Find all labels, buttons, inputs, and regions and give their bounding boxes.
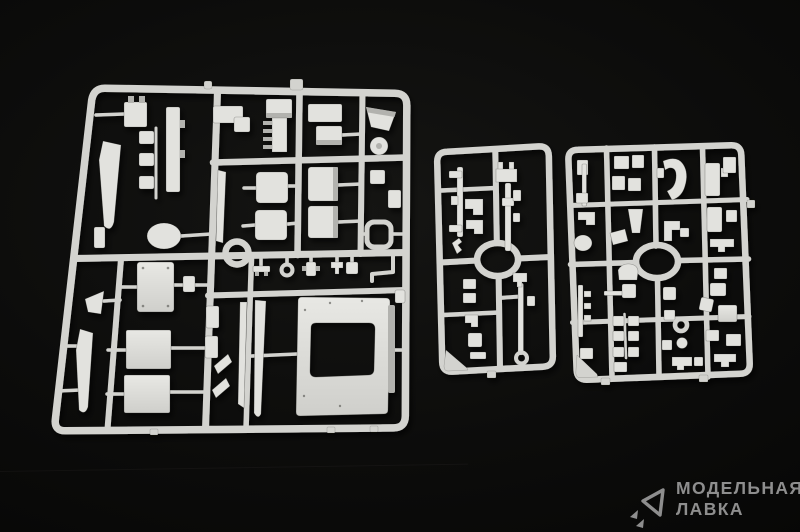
sprues-scene	[0, 0, 800, 532]
watermark-text: МОДЕЛЬНАЯ ЛАВКА	[676, 478, 800, 520]
louver-grille-part	[272, 118, 287, 152]
roof-panel-part	[296, 297, 390, 416]
open-frame-part	[367, 222, 391, 247]
turret-part	[618, 264, 638, 280]
watermark-line2: ЛАВКА	[676, 499, 800, 520]
sprue-ring	[636, 245, 678, 278]
photo-model-sprues: МОДЕЛЬНАЯ ЛАВКА	[0, 0, 800, 532]
small-sprue-parts	[574, 155, 755, 385]
sprue-rails	[571, 147, 750, 379]
gun-rod-part	[505, 183, 511, 251]
hatch-panel-part	[137, 262, 174, 312]
watermark-line1: МОДЕЛЬНАЯ	[676, 478, 800, 499]
gun-rod-part	[518, 283, 524, 355]
flat-plate-part	[126, 330, 171, 369]
sprue-ring	[477, 243, 518, 276]
brand-watermark: МОДЕЛЬНАЯ ЛАВКА	[622, 468, 800, 529]
skirt-blade-part	[76, 329, 93, 412]
fender-part	[663, 159, 687, 200]
narrow-sprue-parts	[444, 162, 535, 378]
paper-plane-triangle-icon	[622, 477, 668, 529]
large-sprue	[55, 79, 407, 435]
side-strip-part	[254, 300, 266, 417]
corner-gusset	[444, 350, 468, 371]
dome-part	[147, 223, 181, 249]
small-sprue	[568, 145, 755, 385]
hull-blade-part	[99, 141, 121, 229]
narrow-sprue	[437, 146, 553, 378]
flat-plate-part	[124, 375, 170, 413]
